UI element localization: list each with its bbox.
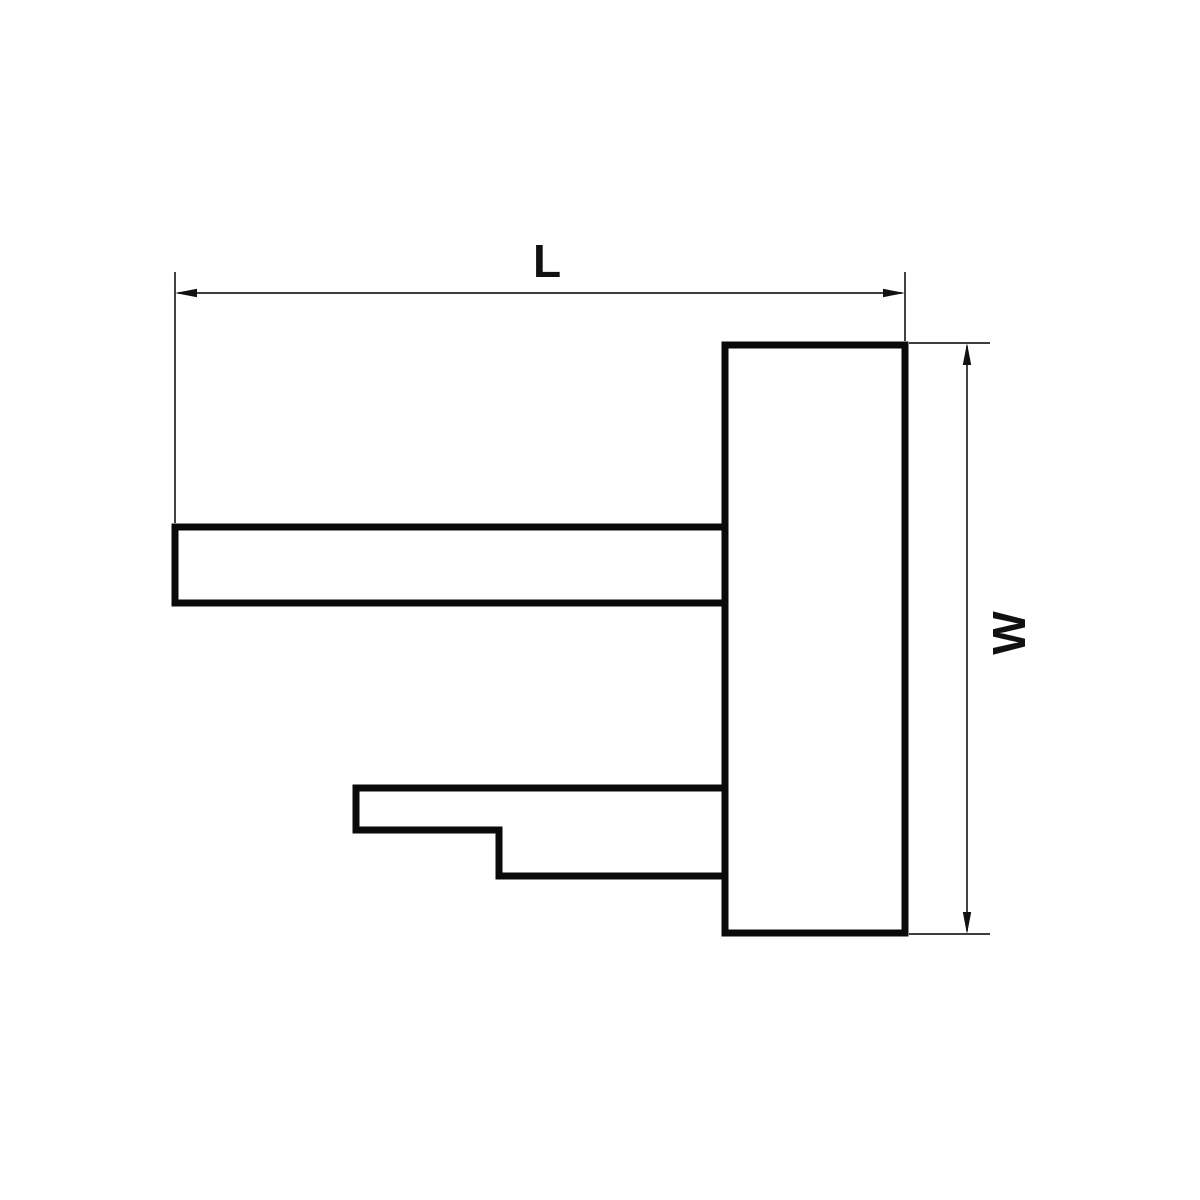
handle-bar-outline bbox=[175, 527, 725, 603]
stepped-bracket-outline bbox=[356, 788, 725, 876]
drawing-canvas: L W bbox=[0, 0, 1200, 1200]
width-dimension-label: W bbox=[983, 611, 1035, 655]
arrow-left-icon bbox=[175, 289, 197, 297]
vertical-plate-outline bbox=[725, 345, 905, 933]
width-dimension: W bbox=[909, 343, 1035, 934]
length-dimension-label: L bbox=[533, 235, 561, 287]
arrow-down-icon bbox=[963, 912, 971, 934]
arrow-right-icon bbox=[883, 289, 905, 297]
arrow-up-icon bbox=[963, 343, 971, 365]
technical-drawing: L W bbox=[0, 0, 1200, 1200]
